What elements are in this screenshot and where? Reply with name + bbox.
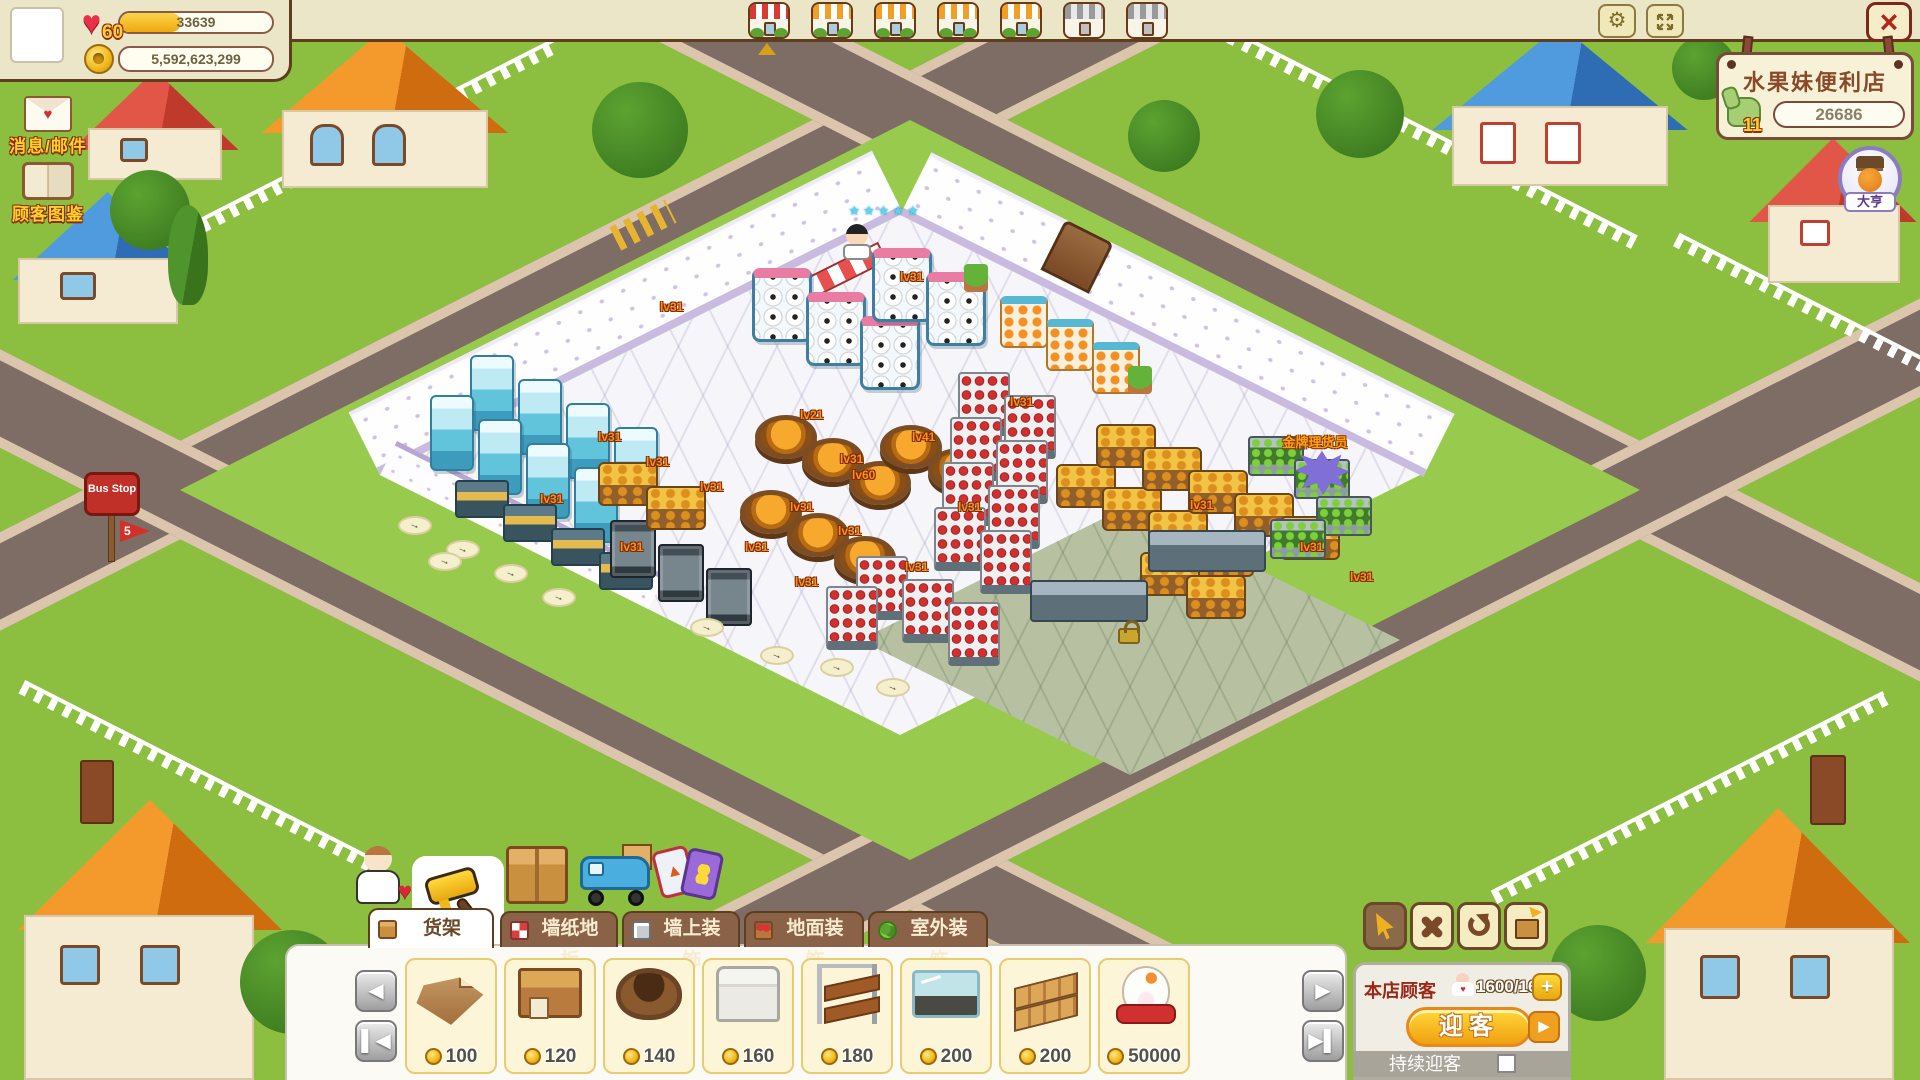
- level-label: lv31: [1190, 498, 1213, 512]
- level-label: lv31: [840, 452, 863, 466]
- level-label: lv31: [646, 455, 669, 469]
- level-label: lv31: [620, 540, 643, 554]
- customer-panel: 本店顾客 1600/1600 + 迎客 ▶ 持续迎客: [1353, 962, 1571, 1080]
- tree: [1128, 100, 1200, 172]
- item-price: 50000: [1100, 1046, 1188, 1068]
- bush-icon: [900, 28, 914, 39]
- item-card[interactable]: 180: [801, 958, 893, 1074]
- coin-bar: 5,592,623,299: [118, 46, 274, 72]
- item-price: 120: [506, 1046, 594, 1068]
- level-label: lv31: [900, 270, 923, 284]
- wallpaper-tab-icon: [510, 921, 529, 940]
- level-label: lv31: [795, 575, 818, 589]
- customer-icon: [1452, 973, 1474, 997]
- coin-value: 5,592,623,299: [120, 48, 272, 70]
- coin-icon: [84, 44, 114, 74]
- tab-outdoor-decor[interactable]: 室外装饰: [868, 911, 988, 947]
- mail-button-label: 消息/邮件: [0, 132, 96, 157]
- store-info-sign: 水果妹便利店 11 26686: [1716, 52, 1914, 140]
- picket-fence: [18, 680, 381, 875]
- store-name: 水果妹便利店: [1719, 65, 1911, 97]
- level-label: lv31: [745, 540, 768, 554]
- player-avatar[interactable]: [10, 7, 64, 63]
- bush-icon: [1002, 28, 1016, 39]
- item-card[interactable]: 120: [504, 958, 596, 1074]
- book-icon: [22, 162, 74, 200]
- next-page-button[interactable]: ▶: [1302, 970, 1344, 1012]
- prop-soccer[interactable]: [860, 316, 920, 390]
- item-thumbnail: [616, 968, 682, 1020]
- continuous-welcome-checkbox[interactable]: [1497, 1054, 1516, 1073]
- likes-level: 11: [1743, 115, 1762, 136]
- level-label: lv31: [790, 500, 813, 514]
- shelf-tab-icon: [378, 920, 397, 939]
- prop-lock: [1118, 628, 1140, 644]
- item-price: 200: [1001, 1046, 1089, 1068]
- sign-pin: [1894, 60, 1903, 69]
- customer-label: 本店顾客: [1364, 977, 1436, 1003]
- continuous-welcome-bar: 持续迎客: [1353, 1051, 1571, 1077]
- awning: [876, 4, 914, 19]
- item-price: 160: [704, 1046, 792, 1068]
- category-delivery-button[interactable]: [580, 844, 654, 904]
- tab-wallpaper-floor[interactable]: 墙纸地板: [500, 911, 618, 947]
- owner-title-badge: 大亨: [1844, 192, 1896, 212]
- welcome-button[interactable]: 迎客: [1406, 1007, 1532, 1047]
- prop-steel[interactable]: [1030, 580, 1148, 622]
- level-label: lv41: [912, 430, 935, 444]
- tree: [592, 82, 688, 178]
- prop-plant[interactable]: [1128, 366, 1152, 394]
- coin-icon: [524, 1048, 541, 1065]
- player-panel: ♥ 60 33639 5,592,623,299: [0, 0, 292, 82]
- chimney: [1810, 755, 1846, 825]
- prop-steel[interactable]: [1148, 530, 1266, 572]
- cursor-icon: [1376, 913, 1398, 941]
- heart-icon: ♥: [398, 878, 412, 906]
- house-window: [1545, 122, 1581, 164]
- fullscreen-icon: [1653, 10, 1677, 34]
- prop-freezer2[interactable]: [430, 395, 474, 471]
- bush-icon: [750, 28, 764, 39]
- prop-red[interactable]: [980, 530, 1032, 594]
- level-label: lv31: [905, 560, 928, 574]
- level-label: lv60: [852, 468, 875, 482]
- outdoor-decor-tab-icon: [878, 921, 897, 940]
- prop-arrow: [876, 678, 910, 697]
- tab-shelves[interactable]: 货架: [368, 908, 494, 948]
- tool-rotate-button[interactable]: [1457, 902, 1501, 950]
- prop-soccer[interactable]: [872, 248, 932, 322]
- prop-arrow: [494, 564, 528, 583]
- person-body-icon: [356, 870, 400, 904]
- coin-icon: [623, 1048, 640, 1065]
- shop-door-icon: [1079, 22, 1091, 36]
- thumbs-up-icon: 11: [1727, 97, 1761, 127]
- house-window: [140, 945, 180, 985]
- prop-arrow: [690, 618, 724, 637]
- house-window: [1790, 955, 1830, 999]
- category-friends-button[interactable]: ♥: [352, 846, 412, 908]
- shop-tab-1[interactable]: [748, 2, 790, 39]
- catalog-button-label: 顾客图鉴: [0, 200, 96, 225]
- prop-chest[interactable]: [551, 528, 605, 566]
- tool-move-button[interactable]: [1410, 902, 1454, 950]
- bush-icon: [813, 28, 827, 39]
- prop-red[interactable]: [902, 579, 954, 643]
- bus-stop-sign: Bus Stop: [84, 472, 140, 516]
- item-card[interactable]: 200: [999, 958, 1091, 1074]
- shop-tab-5[interactable]: [1000, 2, 1042, 39]
- prop-plant[interactable]: [964, 264, 988, 292]
- item-price: 200: [902, 1046, 990, 1068]
- shop-tab-4[interactable]: [937, 2, 979, 39]
- xp-value: 33639: [120, 13, 272, 32]
- active-shop-indicator: [758, 43, 776, 55]
- level-label: lv31: [1010, 395, 1033, 409]
- level-label: lv31: [1300, 540, 1323, 554]
- coin-icon: [722, 1048, 739, 1065]
- house-window: [310, 124, 344, 166]
- npc-title-label: 金牌理货员: [1245, 432, 1385, 451]
- tree: [1316, 70, 1404, 158]
- coin-icon: [1107, 1048, 1124, 1065]
- welcome-play-button[interactable]: ▶: [1528, 1011, 1560, 1043]
- item-thumbnail: [1009, 966, 1081, 1030]
- person-icon: [364, 846, 392, 872]
- house-wall: [1768, 205, 1900, 283]
- house-wall: [1664, 928, 1894, 1080]
- level-label: lv31: [660, 300, 683, 314]
- house-roof-orange: [0, 800, 300, 930]
- prop-red[interactable]: [934, 507, 986, 571]
- prop-arrow: [542, 588, 576, 607]
- wall-decor-tab-icon: [632, 921, 651, 940]
- bush-icon: [939, 28, 953, 39]
- prop-chest[interactable]: [455, 480, 509, 518]
- truck-wheel-icon: [628, 890, 644, 906]
- prop-arrow: [760, 646, 794, 665]
- bush-icon: [1026, 28, 1040, 39]
- xp-bar: 33639: [118, 11, 274, 34]
- item-price: 140: [605, 1046, 693, 1068]
- likes-bar: 26686: [1773, 101, 1905, 128]
- house-window: [1800, 220, 1830, 246]
- add-capacity-button[interactable]: +: [1532, 973, 1562, 1001]
- coin-icon: [920, 1048, 937, 1065]
- first-page-button[interactable]: ▌◀: [355, 1020, 397, 1062]
- tab-floor-decor[interactable]: 地面装饰: [744, 911, 864, 947]
- level-label: lv31: [958, 500, 981, 514]
- last-page-button[interactable]: ▶▌: [1302, 1020, 1344, 1062]
- rotate-icon: [1468, 914, 1490, 936]
- level-label: lv21: [800, 408, 823, 422]
- mail-button[interactable]: ♥ 消息/邮件: [0, 96, 96, 157]
- category-storage-button[interactable]: [506, 846, 568, 904]
- bush-icon: [876, 28, 890, 39]
- prop-chest[interactable]: [503, 504, 557, 542]
- awning: [813, 4, 851, 19]
- level-label: lv31: [1350, 570, 1373, 584]
- coin-icon: [1019, 1048, 1036, 1065]
- house-window: [60, 272, 96, 300]
- item-card[interactable]: 160: [702, 958, 794, 1074]
- shop-door-icon: [1142, 22, 1154, 36]
- awning: [1065, 4, 1103, 19]
- prop-arrow: [820, 658, 854, 677]
- bush-icon: [963, 28, 977, 39]
- paint-roller-icon: [423, 865, 481, 906]
- tab-wall-decor[interactable]: 墙上装饰: [622, 911, 740, 947]
- cypress-tree: [168, 205, 208, 305]
- staff-character[interactable]: [846, 224, 868, 246]
- prop-red[interactable]: [826, 586, 878, 650]
- house-window: [120, 138, 148, 162]
- settings-button[interactable]: ⚙: [1598, 4, 1636, 38]
- store-box-icon: [1515, 919, 1539, 939]
- prop-soccer[interactable]: [752, 268, 812, 342]
- item-thumbnail: [518, 968, 582, 1018]
- house-wall: [18, 258, 178, 324]
- prop-soccer[interactable]: [806, 292, 866, 366]
- item-card[interactable]: 200: [900, 958, 992, 1074]
- shop-tab-3[interactable]: [874, 2, 916, 39]
- awning: [750, 4, 788, 19]
- bush-icon: [837, 28, 851, 39]
- customer-catalog-button[interactable]: 顾客图鉴: [0, 162, 96, 225]
- prev-page-button[interactable]: ◀: [355, 970, 397, 1012]
- house-window: [60, 945, 100, 985]
- floor-decor-tab-icon: [754, 921, 773, 940]
- prop-gold[interactable]: [646, 486, 706, 530]
- staff-character-body: [843, 244, 871, 260]
- owner-hat-icon: [1856, 156, 1884, 168]
- prop-red[interactable]: [948, 602, 1000, 666]
- prop-dark[interactable]: [706, 568, 752, 626]
- shop-tab-2[interactable]: [811, 2, 853, 39]
- item-thumbnail: [817, 964, 877, 1024]
- item-card[interactable]: 100: [405, 958, 497, 1074]
- item-price: 180: [803, 1046, 891, 1068]
- close-icon: ×: [1880, 4, 1899, 40]
- item-card[interactable]: 50000: [1098, 958, 1190, 1074]
- tool-cursor-button[interactable]: [1363, 902, 1407, 950]
- shop-tab-7-locked[interactable]: [1126, 2, 1168, 39]
- house-wall: [24, 915, 254, 1080]
- item-card[interactable]: 140: [603, 958, 695, 1074]
- house-window: [1700, 955, 1740, 999]
- awning: [1128, 4, 1166, 19]
- truck-window-icon: [588, 862, 604, 876]
- prop-arrow: [428, 552, 462, 571]
- item-thumbnail: [912, 970, 980, 1018]
- coin-icon: [425, 1048, 442, 1065]
- level-label: lv31: [838, 524, 861, 538]
- prop-fruit[interactable]: [1000, 296, 1048, 348]
- prop-gold[interactable]: [1186, 575, 1246, 619]
- category-items-button[interactable]: [656, 844, 722, 908]
- chimney: [80, 760, 114, 824]
- tool-store-button[interactable]: [1504, 902, 1548, 950]
- bush-icon: [774, 28, 788, 39]
- mail-icon: ♥: [24, 96, 72, 132]
- sign-pin: [1727, 60, 1736, 69]
- truck-wheel-icon: [588, 890, 604, 906]
- level-label: lv31: [540, 492, 563, 506]
- house-window: [1480, 122, 1516, 164]
- awning: [1002, 4, 1040, 19]
- staff-star-rating: ★★★★★: [820, 203, 950, 219]
- coin-icon: [821, 1048, 838, 1065]
- owner-face: [1858, 168, 1882, 192]
- level-label: lv31: [598, 430, 621, 444]
- item-thumbnail: [415, 966, 487, 1030]
- shop-tab-6-locked[interactable]: [1063, 2, 1105, 39]
- level-label: lv31: [700, 480, 723, 494]
- gear-icon: ⚙: [1608, 9, 1627, 32]
- house-window: [372, 124, 406, 166]
- likes-value: 26686: [1815, 105, 1862, 124]
- awning: [939, 4, 977, 19]
- item-thumbnail: [716, 966, 780, 1022]
- fullscreen-button[interactable]: [1646, 4, 1684, 38]
- prop-fruit[interactable]: [1046, 319, 1094, 371]
- item-price: 100: [407, 1046, 495, 1068]
- prop-dark[interactable]: [658, 544, 704, 602]
- house-roof-orange: [1628, 808, 1920, 943]
- heart-level-icon: ♥: [82, 4, 101, 41]
- item-thumbnail: [1114, 962, 1174, 1024]
- heart-seal-icon: ♥: [26, 106, 70, 123]
- prop-arrow: [398, 516, 432, 535]
